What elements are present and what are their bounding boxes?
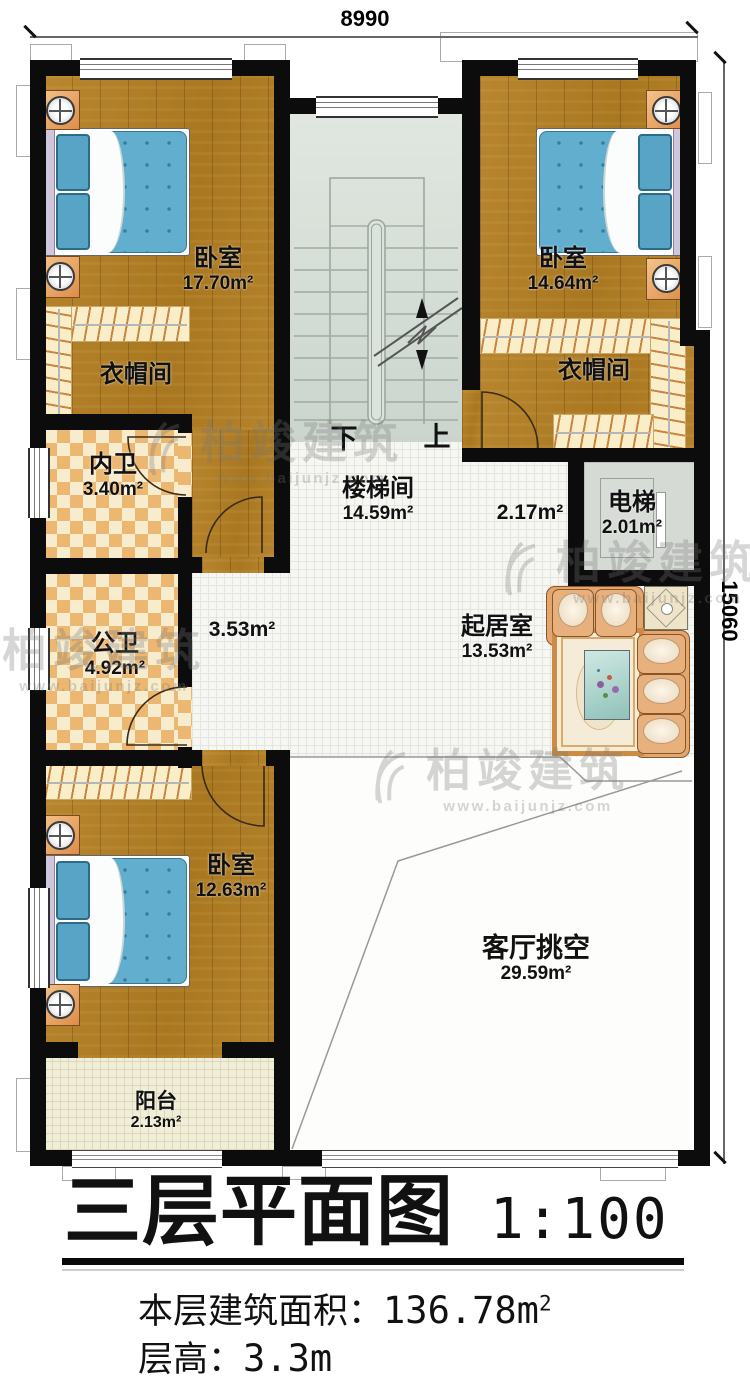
- room-area: 29.59m²: [482, 963, 590, 984]
- room-label-bedroom-tr: 卧室 14.64m²: [528, 246, 599, 294]
- window: [28, 628, 50, 690]
- stairs-diagram: [290, 114, 462, 442]
- room-name: 卧室: [183, 246, 254, 273]
- room-label-bedroom-b: 卧室 12.63m²: [196, 853, 267, 901]
- title-underline-light: [62, 1269, 684, 1271]
- room-name: 衣帽间: [100, 362, 172, 389]
- room-area: 14.59m²: [342, 503, 414, 524]
- wall: [264, 557, 290, 573]
- window: [316, 96, 438, 118]
- footer-height-line: 层高：3.3m: [138, 1331, 332, 1381]
- room-area: 17.70m²: [183, 273, 254, 294]
- bed-pillow: [56, 193, 90, 250]
- wall: [568, 448, 584, 586]
- void-railing: [322, 1150, 678, 1168]
- room-name: 楼梯间: [342, 476, 414, 503]
- sill-outline: [244, 44, 286, 61]
- wall: [30, 750, 192, 766]
- room-label-stairwell: 楼梯间 14.59m²: [342, 476, 414, 524]
- wall: [30, 558, 192, 574]
- title-text: 三层平面图: [64, 1172, 454, 1253]
- clothes-rack: [44, 306, 72, 424]
- coffee-table: [584, 650, 630, 720]
- sill-outline: [698, 92, 712, 164]
- room-label-elevator: 电梯 2.01m²: [602, 490, 662, 538]
- bed-top-left: [44, 128, 190, 256]
- wall: [30, 60, 46, 1166]
- nightstand: [40, 984, 80, 1026]
- room-area: 12.63m²: [196, 880, 267, 901]
- door-arc-cloak-right: [480, 390, 544, 450]
- room-label-void: 客厅挑空 29.59m²: [482, 933, 590, 985]
- bed-pillow: [638, 193, 672, 250]
- bed-pillow: [56, 861, 90, 920]
- room-label-cloak-left: 衣帽间: [100, 362, 172, 389]
- stairs-up-label: 上: [424, 415, 451, 454]
- room-label-cloak-right: 衣帽间: [558, 358, 630, 385]
- room-area: 3.53m²: [209, 618, 276, 642]
- nightstand: [40, 90, 80, 130]
- wall: [192, 557, 202, 573]
- clothes-rack: [70, 306, 190, 342]
- dimension-right-label: 15060: [716, 576, 742, 646]
- window: [28, 448, 50, 518]
- wall: [222, 1042, 290, 1058]
- room-area: 4.92m²: [85, 658, 145, 679]
- room-name: 公卫: [85, 631, 145, 658]
- room-area: 14.64m²: [528, 273, 599, 294]
- wall: [30, 1042, 78, 1058]
- bed-pillow: [56, 134, 90, 191]
- door-gap: [202, 557, 264, 573]
- wall: [694, 330, 710, 1166]
- sofa-cushion: [637, 714, 686, 754]
- lamp-icon: [46, 821, 75, 850]
- room-label-bedroom-tl: 卧室 17.70m²: [183, 246, 254, 294]
- sill-outline: [16, 85, 31, 157]
- room-label-balcony: 阳台 2.13m²: [131, 1090, 182, 1131]
- footer-area-value: 136.78m: [383, 1289, 539, 1332]
- room-name: 客厅挑空: [482, 933, 590, 963]
- wall: [678, 1150, 710, 1166]
- footer-area-line: 本层建筑面积：136.78m2: [138, 1283, 552, 1334]
- room-name: 内卫: [83, 452, 143, 479]
- clothes-rack: [44, 764, 192, 800]
- door-arc-bedroom-b: [200, 764, 268, 830]
- room-name: 起居室: [461, 614, 533, 641]
- floor-hall: [192, 573, 290, 762]
- title-underline: [62, 1258, 684, 1265]
- sill-outline: [16, 1078, 31, 1152]
- bed-top-right: [536, 128, 684, 256]
- balcony-railing: [72, 1150, 222, 1168]
- room-area: 3.40m²: [83, 479, 143, 500]
- room-label-bath-public: 公卫 4.92m²: [85, 631, 145, 679]
- lamp-icon: [652, 96, 681, 125]
- sill-outline: [698, 256, 712, 328]
- dimension-top-label: 8990: [300, 6, 430, 32]
- footer-area-sup: 2: [539, 1291, 552, 1315]
- wall: [274, 750, 290, 1166]
- lamp-icon: [46, 262, 75, 291]
- door-gap: [462, 390, 480, 448]
- nightstand: [40, 256, 80, 298]
- corner-table: [644, 586, 688, 630]
- title-scale: 1:100: [490, 1187, 669, 1252]
- sill-outline: [30, 44, 72, 61]
- room-area: 13.53m²: [461, 641, 533, 662]
- lamp-icon: [46, 96, 75, 125]
- room-area: 2.13m²: [131, 1114, 182, 1132]
- wall: [462, 60, 480, 390]
- bed-pillow: [56, 922, 90, 981]
- wall: [290, 1150, 322, 1166]
- room-name: 阳台: [131, 1090, 182, 1114]
- sill-outline: [16, 288, 31, 360]
- bed-pillow: [638, 134, 672, 191]
- sofa-cushion: [637, 674, 686, 714]
- lamp-icon: [46, 990, 75, 1019]
- door-arc-bath-public: [125, 685, 189, 747]
- window: [28, 888, 50, 988]
- stairs-down-label: 下: [331, 417, 358, 456]
- nightstand: [40, 815, 80, 855]
- footer-height-value: 3.3m: [243, 1337, 332, 1380]
- clothes-rack: [480, 318, 654, 354]
- wall: [30, 414, 192, 430]
- room-area: 2.17m²: [497, 501, 564, 525]
- room-name: 电梯: [602, 490, 662, 517]
- wall: [274, 60, 290, 573]
- wall: [178, 574, 192, 687]
- wall: [680, 60, 696, 346]
- dimension-tick: [713, 51, 726, 64]
- wall: [30, 1150, 72, 1166]
- bed-bottom: [44, 855, 190, 987]
- window: [80, 58, 232, 80]
- area-label-hall-left: 3.53m²: [209, 618, 276, 642]
- room-label-bath-inner: 内卫 3.40m²: [83, 452, 143, 500]
- floor-plan-canvas: 卧室 17.70m² 卧室 14.64m² 衣帽间 衣帽间 内卫 3.40m² …: [0, 0, 750, 1381]
- window: [518, 58, 638, 80]
- wall: [568, 570, 710, 586]
- sofa-cushion: [595, 589, 637, 637]
- room-name: 卧室: [196, 853, 267, 880]
- sofa-cushion: [552, 589, 594, 637]
- area-label-hall-right: 2.17m²: [497, 501, 564, 525]
- wall: [222, 1150, 274, 1166]
- drawing-title: 三层平面图 1:100: [64, 1172, 669, 1253]
- dimension-top-line: [30, 36, 698, 38]
- room-name: 衣帽间: [558, 358, 630, 385]
- footer-height-label: 层高：: [138, 1340, 243, 1379]
- footer-area-label: 本层建筑面积：: [138, 1292, 383, 1331]
- room-area: 2.01m²: [602, 517, 662, 538]
- clothes-rack: [553, 414, 654, 450]
- sofa-cushion: [637, 634, 686, 674]
- door-arc-suite: [202, 495, 266, 557]
- bed-headboard: [45, 129, 55, 255]
- room-label-living: 起居室 13.53m²: [461, 614, 533, 662]
- room-name: 卧室: [528, 246, 599, 273]
- lamp-icon: [652, 264, 681, 293]
